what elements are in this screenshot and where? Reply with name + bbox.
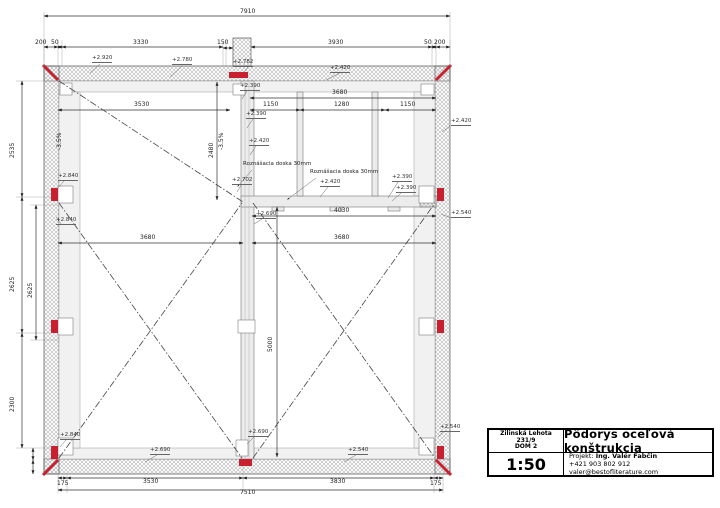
dim-label: 200 xyxy=(434,40,445,46)
level-label: +2.920 xyxy=(92,56,112,63)
dim-label: 2535 xyxy=(10,143,16,158)
dim-label: 3530 xyxy=(143,479,158,485)
level-label: +2.840 xyxy=(58,174,78,181)
level-label: +2.690 xyxy=(256,212,276,219)
dim-label: 3830 xyxy=(330,479,345,485)
slope-label: -3.5% xyxy=(219,133,225,150)
room-beam-horizontal xyxy=(241,196,436,207)
dim-label: 175 xyxy=(57,481,68,487)
title-block: Žilinská Lehota 231/9 DOM 2 Pôdorys oceľ… xyxy=(487,428,714,477)
steel-beams xyxy=(241,81,436,459)
dim-label: 3930 xyxy=(328,40,343,46)
level-label: +2.780 xyxy=(172,58,192,65)
dim-label: 50 xyxy=(424,40,432,46)
level-label: +2.390 xyxy=(240,84,260,91)
dim-label: 2625 xyxy=(10,277,16,292)
dim-label: 3530 xyxy=(134,102,149,108)
level-label: +2.420 xyxy=(330,66,350,73)
level-label: +2.690 xyxy=(150,448,170,455)
dim-label: 3680 xyxy=(332,90,347,96)
level-label: +2.540 xyxy=(348,448,368,455)
level-label: +2.540 xyxy=(440,425,460,432)
level-label: +2.390 xyxy=(396,186,416,193)
level-label: +2.420 xyxy=(320,180,340,187)
level-label: +2.702 xyxy=(232,178,252,185)
note-doska-2: Roznášacia doska 30mm xyxy=(310,170,378,176)
slope-label: -3.5% xyxy=(57,133,63,150)
project-house: DOM 2 xyxy=(515,444,537,451)
level-label: +2.840 xyxy=(56,218,76,225)
dim-label: 1150 xyxy=(400,102,415,108)
dim-label: 2625 xyxy=(28,283,34,298)
dim-label: 3330 xyxy=(133,40,148,46)
dim-label: 200 xyxy=(35,40,46,46)
drawing-title: Pôdorys oceľová konštrukcia xyxy=(564,427,712,455)
drawing-sheet: 7910 200 50 3330 150 3930 50 200 3530 36… xyxy=(0,0,720,508)
level-label: +2.540 xyxy=(451,211,471,218)
project-contact: +421 903 802 912 valer@bestofliterature.… xyxy=(569,460,658,476)
dim-label: 3680 xyxy=(140,235,155,241)
level-label: +2.390 xyxy=(246,112,266,119)
dim-label: 1150 xyxy=(263,102,278,108)
dim-overall-top: 7910 xyxy=(240,9,255,15)
dim-label: 5000 xyxy=(268,337,274,352)
dim-label: 175 xyxy=(430,481,441,487)
level-label: +2.840 xyxy=(60,433,80,440)
dim-label: 4030 xyxy=(334,208,349,214)
level-label: +2.420 xyxy=(451,119,471,126)
project-author: Projekt: Ing. Valér Fabčin +421 903 802 … xyxy=(564,452,712,476)
dim-overall-bottom: 7510 xyxy=(240,490,255,496)
level-label: +2.690 xyxy=(248,430,268,437)
level-label: +2.390 xyxy=(392,175,412,182)
dim-label: 2300 xyxy=(10,397,16,412)
room-beam-vertical-2 xyxy=(372,92,378,196)
drawing-scale: 1:50 xyxy=(506,455,546,474)
room-beam-vertical-1 xyxy=(297,92,303,196)
level-label: +2.782 xyxy=(233,60,253,67)
dim-label: 3680 xyxy=(334,235,349,241)
note-doska-1: Roznášacia doska 30mm xyxy=(243,162,311,168)
level-label: +2.420 xyxy=(249,139,269,146)
dim-label: 50 xyxy=(51,40,59,46)
dim-label: 150 xyxy=(217,40,228,46)
dim-label: 1280 xyxy=(334,102,349,108)
dim-label: 2480 xyxy=(209,143,215,158)
